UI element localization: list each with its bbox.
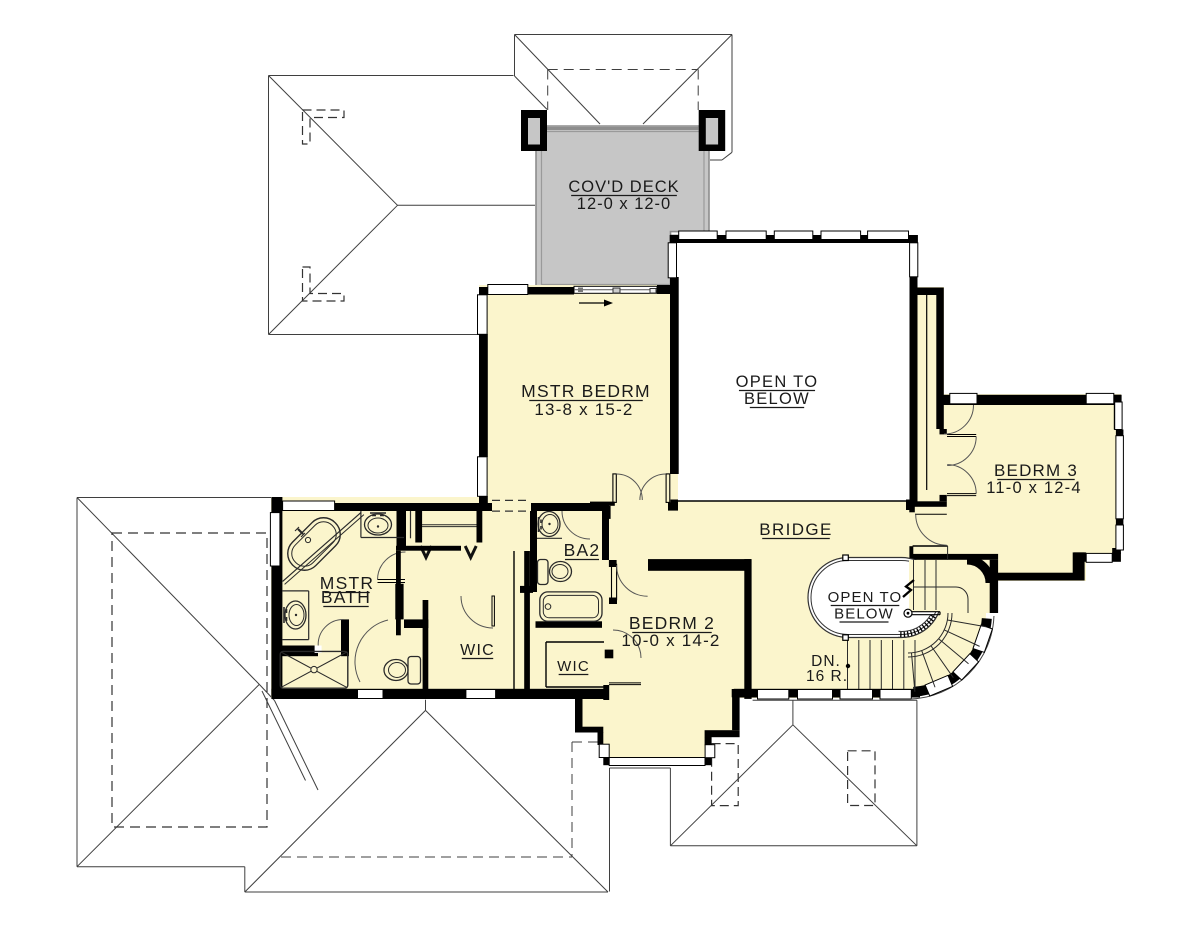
svg-text:MSTR BEDRM: MSTR BEDRM	[521, 381, 651, 401]
svg-text:12-0 x 12-0: 12-0 x 12-0	[577, 195, 671, 213]
svg-text:OPEN TO: OPEN TO	[736, 373, 819, 391]
svg-text:BATH: BATH	[321, 587, 371, 607]
svg-text:BELOW: BELOW	[834, 606, 894, 623]
svg-text:BA2: BA2	[564, 540, 601, 560]
svg-text:10-0 x 14-2: 10-0 x 14-2	[621, 631, 720, 650]
svg-text:13-8 x 15-2: 13-8 x 15-2	[534, 400, 633, 419]
svg-text:16 R.: 16 R.	[806, 668, 848, 685]
svg-text:BELOW: BELOW	[744, 390, 810, 408]
svg-text:BRIDGE: BRIDGE	[759, 520, 833, 539]
svg-text:WIC: WIC	[460, 642, 495, 659]
svg-text:COV'D DECK: COV'D DECK	[568, 178, 679, 196]
svg-text:OPEN TO: OPEN TO	[828, 589, 903, 606]
svg-text:BEDRM 2: BEDRM 2	[629, 613, 715, 633]
svg-text:BEDRM 3: BEDRM 3	[994, 461, 1078, 480]
svg-text:WIC: WIC	[557, 658, 590, 675]
svg-text:11-0 x 12-4: 11-0 x 12-4	[986, 479, 1081, 497]
